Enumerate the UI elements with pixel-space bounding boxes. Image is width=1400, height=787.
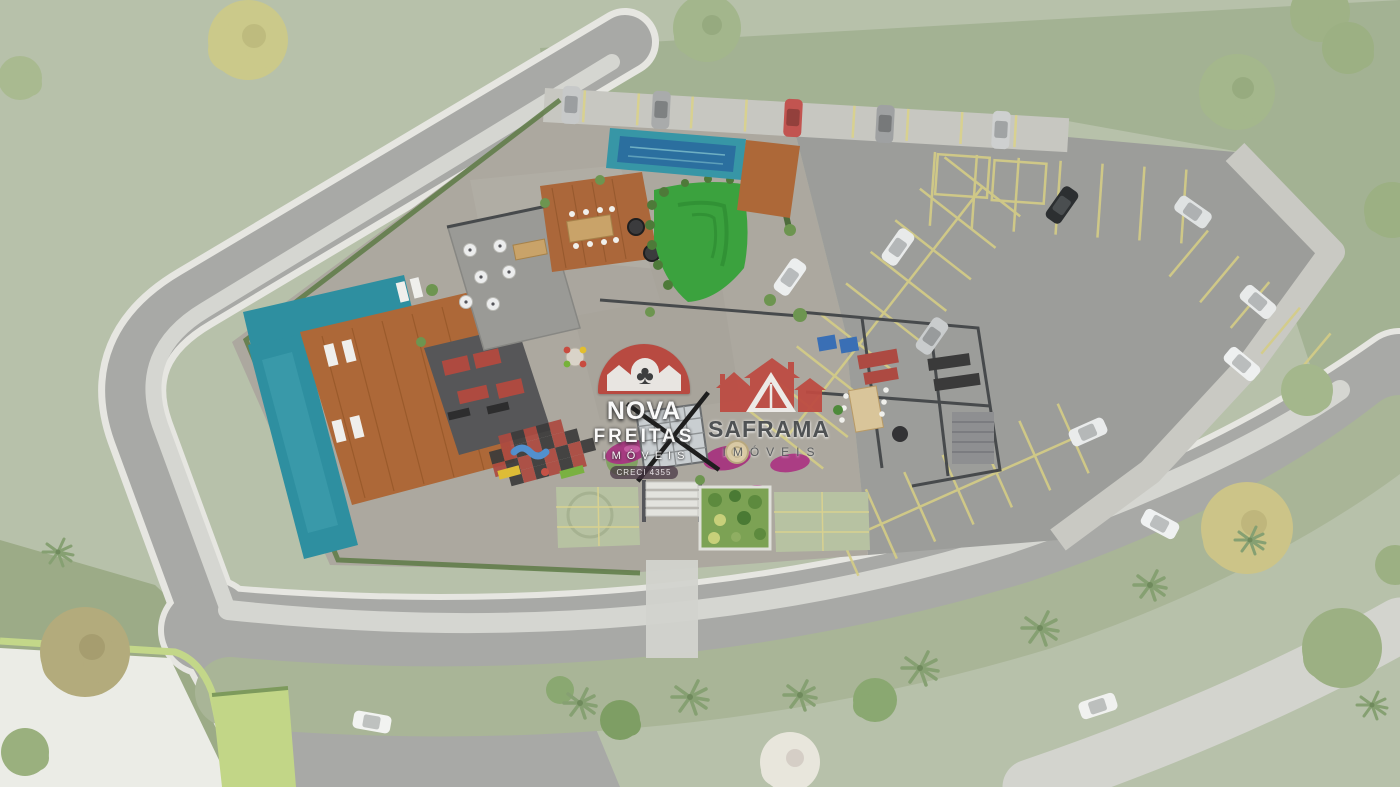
watermarks: ♣ NOVA FREITAS IMÓVEIS CRECI 4355 SAFRAM… bbox=[586, 344, 832, 480]
nova-freitas-logo-icon: ♣ bbox=[598, 344, 690, 394]
nova-freitas-line3: IMÓVEIS bbox=[586, 450, 702, 462]
pool-side-deck bbox=[737, 140, 800, 218]
clover-icon: ♣ bbox=[631, 359, 659, 392]
garden-bed bbox=[700, 487, 770, 549]
saframa-line1: SAFRAMA bbox=[706, 416, 832, 443]
site-plan-rendering: ♣ NOVA FREITAS IMÓVEIS CRECI 4355 SAFRAM… bbox=[0, 0, 1400, 787]
saframa-line2: IMÓVEIS bbox=[706, 445, 832, 459]
arch-doorway: ♣ bbox=[631, 358, 659, 391]
kids-table bbox=[564, 347, 587, 368]
nova-freitas-line1: NOVA bbox=[586, 397, 702, 426]
saframa-logo-icon bbox=[710, 358, 828, 416]
nova-freitas-line2: FREITAS bbox=[586, 426, 702, 448]
watermark-saframa: SAFRAMA IMÓVEIS bbox=[706, 358, 832, 459]
watermark-nova-freitas: ♣ NOVA FREITAS IMÓVEIS CRECI 4355 bbox=[586, 344, 702, 480]
creci-badge: CRECI 4355 bbox=[610, 466, 679, 479]
entrance-steps bbox=[642, 480, 702, 522]
